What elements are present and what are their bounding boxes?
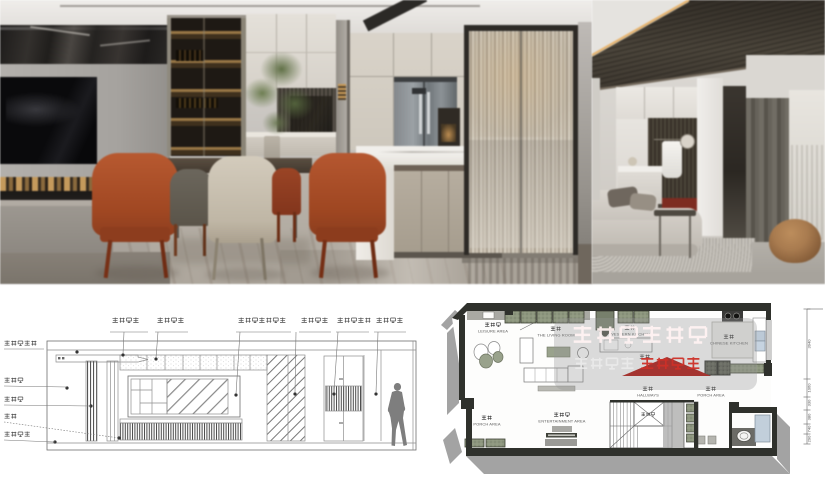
svg-text:LEISURE AREA: LEISURE AREA <box>478 329 508 334</box>
svg-text:740: 740 <box>807 425 812 432</box>
svg-text:290: 290 <box>807 435 812 442</box>
svg-text:380: 380 <box>807 413 812 420</box>
svg-text:330: 330 <box>807 399 812 406</box>
svg-text:PORCH AREA: PORCH AREA <box>473 422 500 427</box>
svg-text:HALLWAYS: HALLWAYS <box>637 393 659 398</box>
svg-text:1060: 1060 <box>807 383 812 393</box>
svg-text:3940: 3940 <box>807 339 812 349</box>
svg-text:ENTERTAINMENT AREA: ENTERTAINMENT AREA <box>538 419 585 424</box>
svg-text:PORCH AREA: PORCH AREA <box>697 393 724 398</box>
